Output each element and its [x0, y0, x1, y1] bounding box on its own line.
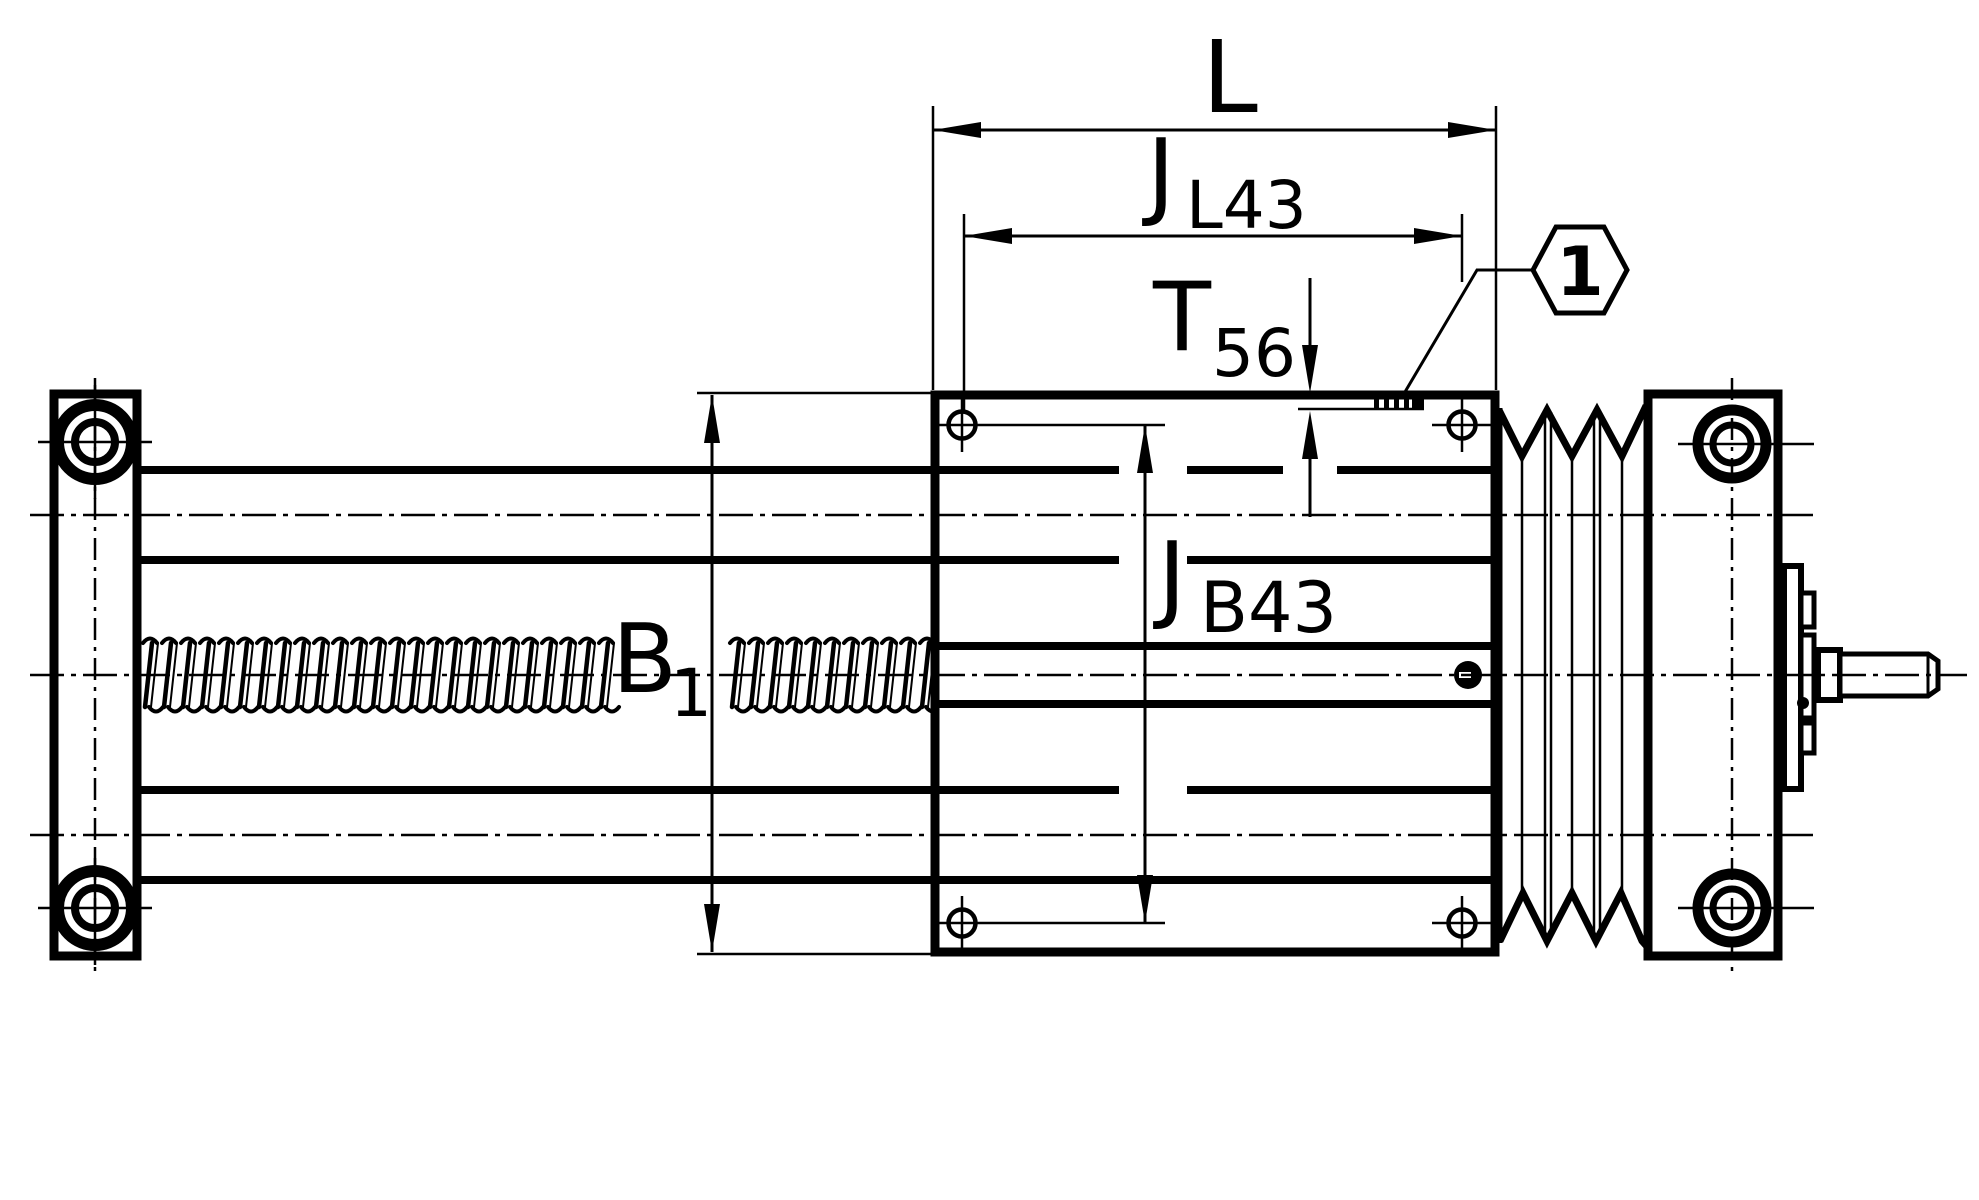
callout-1-number: 1	[1556, 233, 1603, 312]
callout-1: 1	[1402, 227, 1627, 397]
label-L: L	[1202, 19, 1258, 136]
label-JB43-main: J	[1153, 523, 1186, 633]
drive-shaft-assembly	[1784, 566, 1938, 789]
label-JL43-main: J	[1142, 120, 1175, 230]
label-JB43-sub: B43	[1200, 567, 1337, 649]
leader-line	[1402, 270, 1533, 397]
carriage-block	[934, 392, 1495, 952]
drive-flange	[1784, 566, 1801, 789]
bellows-cover	[1499, 408, 1650, 950]
actuator-drawing: L J L43 T 56 B 1 J B43	[0, 0, 1979, 1200]
technical-drawing-canvas: L J L43 T 56 B 1 J B43	[0, 0, 1979, 1200]
label-B1-sub: 1	[670, 655, 712, 732]
label-T56-sub: 56	[1212, 315, 1296, 392]
label-T56-main: T	[1152, 263, 1212, 373]
flange-screw-dot	[1797, 697, 1809, 709]
label-JL43-sub: L43	[1186, 167, 1307, 244]
label-B1-main: B	[612, 605, 677, 715]
